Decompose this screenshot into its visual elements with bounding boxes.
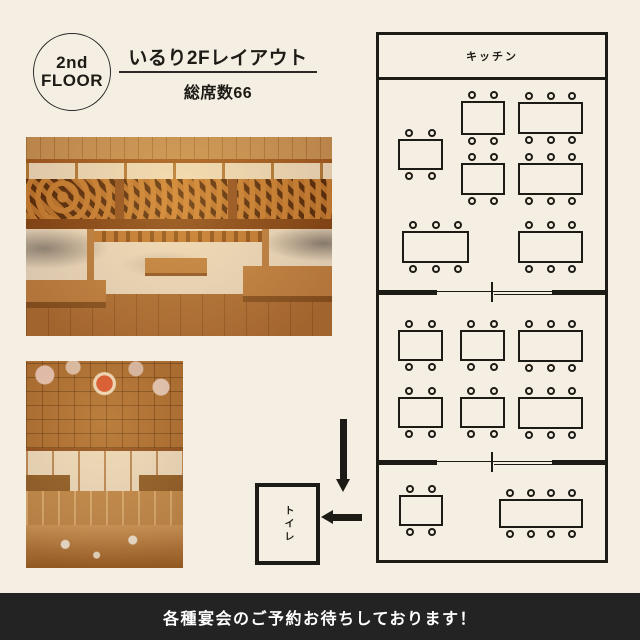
dining-table	[402, 231, 469, 263]
partition-wall-segment	[379, 460, 437, 465]
footer-message: 各種宴会のご予約お待ちしております！	[163, 605, 477, 629]
chair	[405, 387, 413, 395]
chair	[525, 320, 533, 328]
photo1-light-glow	[26, 137, 332, 336]
chair	[525, 265, 533, 273]
chair	[525, 387, 533, 395]
chair	[405, 320, 413, 328]
chair	[547, 431, 555, 439]
chair	[432, 221, 440, 229]
chair	[428, 387, 436, 395]
toilet-box: トイレ	[255, 483, 320, 565]
chair	[568, 136, 576, 144]
chair	[568, 153, 576, 161]
chair	[467, 387, 475, 395]
dining-table	[398, 330, 443, 361]
partition-door-line	[494, 291, 552, 292]
chair	[547, 320, 555, 328]
chair	[490, 197, 498, 205]
chair	[490, 153, 498, 161]
partition-wall-segment	[552, 460, 605, 465]
chair	[454, 265, 462, 273]
chair	[468, 137, 476, 145]
chair	[525, 153, 533, 161]
chair	[506, 530, 514, 538]
badge-floor-word: FLOOR	[41, 72, 103, 90]
chair	[405, 430, 413, 438]
chair	[454, 221, 462, 229]
chair	[432, 265, 440, 273]
chair	[568, 265, 576, 273]
chair	[428, 485, 436, 493]
chair	[568, 197, 576, 205]
dining-table	[518, 102, 583, 134]
chair	[568, 364, 576, 372]
chair	[409, 221, 417, 229]
chair	[568, 489, 576, 497]
chair	[406, 485, 414, 493]
chair	[490, 363, 498, 371]
dining-table	[461, 163, 505, 195]
chair	[568, 431, 576, 439]
chair	[490, 387, 498, 395]
chair	[568, 320, 576, 328]
arrow-down-head	[336, 479, 350, 492]
partition-center-post	[491, 282, 493, 302]
footer-banner: 各種宴会のご予約お待ちしております！	[0, 593, 640, 640]
chair	[568, 92, 576, 100]
chair	[490, 320, 498, 328]
photo-dining-room-wide	[26, 137, 332, 336]
chair	[527, 489, 535, 497]
chair	[568, 530, 576, 538]
partition-door-line	[494, 461, 552, 462]
chair	[547, 387, 555, 395]
dining-table	[460, 330, 505, 361]
chair	[525, 197, 533, 205]
partition-door-line	[494, 294, 552, 295]
chair	[525, 136, 533, 144]
dining-table	[518, 330, 583, 362]
chair	[467, 320, 475, 328]
total-seats-label: 総席数66	[118, 79, 318, 103]
chair	[506, 489, 514, 497]
dining-table	[518, 397, 583, 429]
dining-table	[499, 499, 583, 528]
chair	[525, 364, 533, 372]
chair	[547, 92, 555, 100]
dining-table	[398, 397, 443, 428]
chair	[405, 129, 413, 137]
partition-door-line	[494, 464, 552, 465]
chair	[428, 430, 436, 438]
chair	[405, 363, 413, 371]
chair	[527, 530, 535, 538]
chair	[547, 221, 555, 229]
chair	[547, 265, 555, 273]
chair	[568, 387, 576, 395]
chair	[547, 197, 555, 205]
partition-door-line	[437, 291, 494, 292]
title-underline	[119, 71, 317, 73]
chair	[467, 363, 475, 371]
chair	[525, 92, 533, 100]
toilet-label: トイレ	[280, 505, 295, 544]
partition-door-line	[437, 461, 494, 462]
badge-floor-number: 2nd	[56, 54, 88, 72]
photo2-light-glow	[26, 361, 183, 568]
arrow-left-head	[321, 510, 333, 524]
floor-plan: キッチン	[376, 32, 608, 563]
dining-table	[518, 231, 583, 263]
chair	[490, 430, 498, 438]
chair	[547, 136, 555, 144]
dining-area	[379, 35, 605, 560]
floor-badge: 2nd FLOOR	[33, 33, 111, 111]
chair	[547, 530, 555, 538]
page: 2nd FLOOR いるり2Fレイアウト 総席数66 キッチン	[0, 0, 640, 640]
chair	[428, 129, 436, 137]
partition-wall-segment	[379, 290, 437, 295]
page-title: いるり2Fレイアウト	[118, 43, 318, 70]
chair	[468, 197, 476, 205]
chair	[547, 364, 555, 372]
dining-table	[461, 101, 505, 135]
chair	[428, 172, 436, 180]
photo-dining-room-tall	[26, 361, 183, 568]
dining-table	[460, 397, 505, 428]
chair	[490, 91, 498, 99]
chair	[428, 320, 436, 328]
chair	[525, 431, 533, 439]
chair	[468, 91, 476, 99]
chair	[428, 363, 436, 371]
chair	[568, 221, 576, 229]
chair	[405, 172, 413, 180]
chair	[406, 528, 414, 536]
partition-wall-segment	[552, 290, 605, 295]
chair	[468, 153, 476, 161]
chair	[490, 137, 498, 145]
chair	[547, 489, 555, 497]
arrow-left-shaft	[333, 514, 362, 521]
dining-table	[518, 163, 583, 195]
chair	[428, 528, 436, 536]
chair	[467, 430, 475, 438]
dining-table	[398, 139, 443, 170]
arrow-down-shaft	[340, 419, 347, 480]
chair	[547, 153, 555, 161]
chair	[525, 221, 533, 229]
dining-table	[399, 495, 443, 526]
partition-center-post	[491, 452, 493, 472]
chair	[409, 265, 417, 273]
